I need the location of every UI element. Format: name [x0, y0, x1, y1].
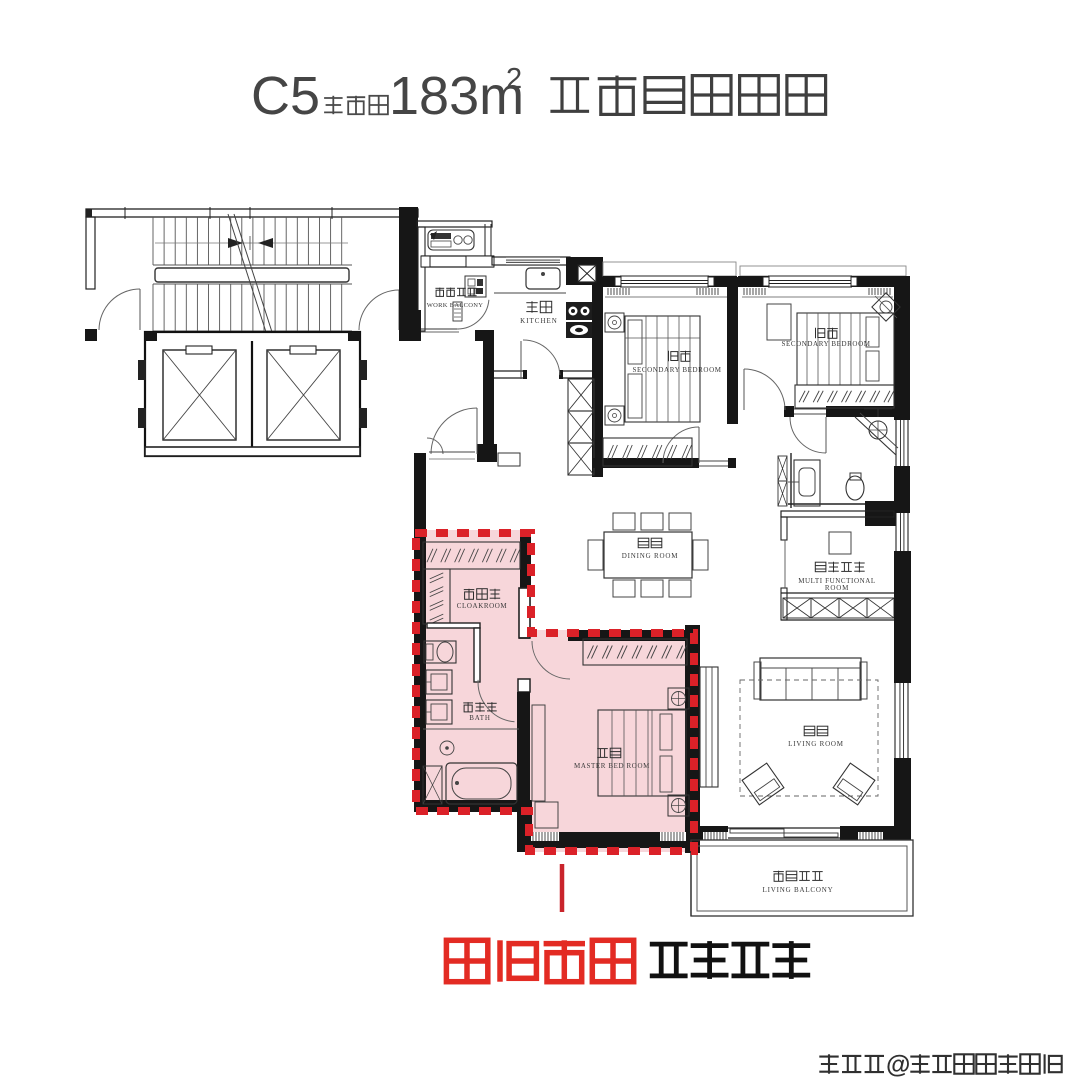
svg-text:183m: 183m	[389, 66, 524, 126]
svg-text:BATH: BATH	[469, 714, 490, 722]
svg-text:LIVING BALCONY: LIVING BALCONY	[763, 886, 834, 894]
svg-text:KITCHEN: KITCHEN	[520, 317, 558, 325]
svg-text:CLOAKROOM: CLOAKROOM	[457, 602, 508, 610]
svg-text:LIVING ROOM: LIVING ROOM	[788, 740, 844, 748]
svg-text:ROOM: ROOM	[825, 584, 849, 592]
svg-text:MASTER BED ROOM: MASTER BED ROOM	[574, 762, 650, 770]
svg-text:SECONDARY BEDROOM: SECONDARY BEDROOM	[632, 366, 721, 374]
svg-text:DINING ROOM: DINING ROOM	[622, 552, 678, 560]
svg-text:SECONDARY BEDROOM: SECONDARY BEDROOM	[781, 340, 870, 348]
svg-text:@: @	[886, 1051, 910, 1079]
svg-text:2: 2	[506, 63, 522, 95]
svg-text:C5: C5	[251, 66, 320, 126]
svg-text:WORK BALCONY: WORK BALCONY	[427, 302, 484, 309]
